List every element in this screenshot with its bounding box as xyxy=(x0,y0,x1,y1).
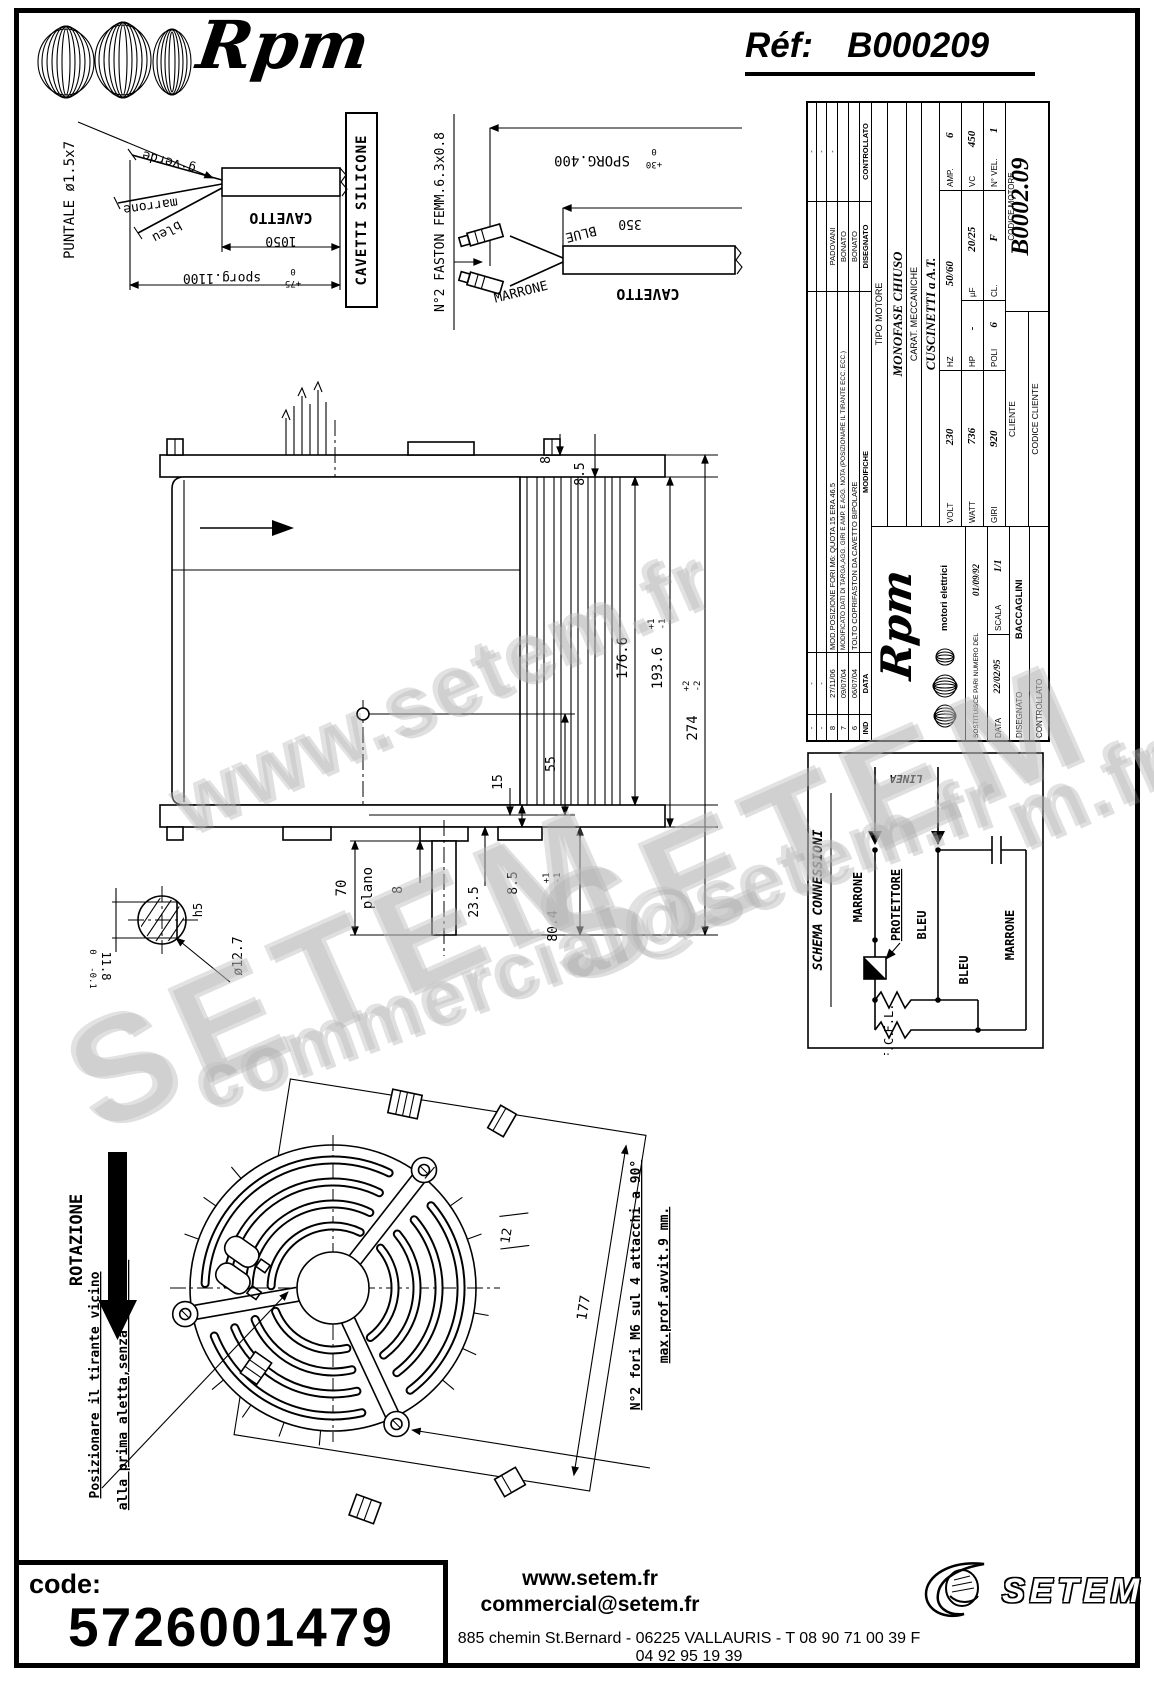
wire-verde-label: g·verde xyxy=(141,147,198,176)
cell-poli: POLI 6 xyxy=(983,300,1006,371)
vel-value: 1 xyxy=(990,102,999,158)
cell-giri: GIRI 920 xyxy=(983,370,1006,527)
cell-amp: AMP. 6 xyxy=(939,101,962,191)
bottom-flange xyxy=(160,805,665,827)
dim-1936: 193.6 xyxy=(650,647,666,689)
blue-label: BLUE xyxy=(564,222,598,244)
dim-8-bot: 8 xyxy=(391,886,406,894)
cl-label: CL. xyxy=(990,285,999,300)
dim-8-top: 8 xyxy=(539,456,554,464)
footer-email: commercial@setem.fr xyxy=(455,1592,725,1618)
volt-label: VOLT xyxy=(946,503,955,526)
ref-value: B000209 xyxy=(847,26,989,66)
shaft-flat-hi: 0 xyxy=(87,949,97,954)
dim-15: 15 xyxy=(491,774,506,790)
cavetti-silicone-label: CAVETTI SILICONE xyxy=(345,112,378,308)
cavetti-silicone-box: CAVETTI SILICONE xyxy=(345,112,378,308)
tb-coils-icon xyxy=(932,639,958,731)
dim-1936-lo: -1 xyxy=(658,619,668,630)
dim-804-lo: -1 xyxy=(553,873,563,884)
cl-value: F xyxy=(990,191,999,285)
cliente-label: CLIENTE xyxy=(1006,312,1017,526)
sostituisce-date: 01/09/92 xyxy=(972,527,981,633)
faston-connector-blue xyxy=(458,224,503,248)
cell-hz: HZ 50/60 xyxy=(939,190,962,371)
linea-label: LINEA xyxy=(889,772,922,785)
footer-address: 885 chemin St.Bernard - 06225 VALLAURIS … xyxy=(448,1630,930,1666)
setem-swoosh-icon xyxy=(920,1558,1000,1630)
scala-value: 1/1 xyxy=(994,527,1003,605)
nota-fori-1: N°2 fori M6 sul 4 attacchi a 90° xyxy=(629,1160,644,1410)
disegnato-value: BACCAGLINI xyxy=(1015,527,1024,692)
dim-70: 70 xyxy=(334,880,350,897)
codice-cliente-label: CODICE CLIENTE xyxy=(1029,312,1040,526)
cell-hp: HP - xyxy=(961,300,984,371)
schema-bleu2: BLEU xyxy=(957,956,971,985)
dim-55: 55 xyxy=(544,756,559,772)
tb-rpm-sub: motori elettrici xyxy=(940,565,949,631)
nota-fori-2: max.prof.avvit.9 mm. xyxy=(657,1207,672,1364)
tb-scala: SCALA 1/1 xyxy=(987,526,1010,635)
tb-data: DATA 22/02/95 xyxy=(987,634,1010,742)
schema-marrone1: MARRONE xyxy=(851,872,865,923)
codice-motore-value: B0002.09 xyxy=(1016,102,1025,311)
uf-label: µF xyxy=(968,288,977,301)
shaft-diameter: ø12.7 xyxy=(231,936,246,975)
schema-fl: F.L. xyxy=(882,1004,896,1033)
dim-177: 177 xyxy=(574,1294,594,1321)
rotazione-label: ROTAZIONE xyxy=(67,1194,87,1286)
giri-value: 920 xyxy=(990,371,999,507)
rpm-brand-text: Rpm xyxy=(193,12,373,78)
cell-cliente: CLIENTE xyxy=(1005,311,1029,527)
terminal-wires xyxy=(282,382,326,455)
data-value: 22/02/95 xyxy=(994,635,1003,718)
dim-85-top: 8.5 xyxy=(573,462,588,485)
volt-value: 230 xyxy=(946,371,955,503)
controllato-label: CONTROLLATO xyxy=(1035,679,1044,741)
vc-label: VC xyxy=(968,176,977,190)
code-box: code: 5726001479 xyxy=(14,1560,448,1668)
motor-side-view: 70 plano 8 8.5 176.6 193.6 +1 -1 274 +2 … xyxy=(50,378,750,1010)
watt-label: WATT xyxy=(968,501,977,526)
schema-fc: F.C. xyxy=(882,1031,896,1055)
hz-label: HZ xyxy=(946,356,955,370)
disegnato-label: DISEGNATO xyxy=(1015,692,1024,741)
schema-title: SCHEMA CONNESSIONI xyxy=(811,829,826,970)
cavetto-right-label: CAVETTO xyxy=(616,285,679,303)
dim-sporg-tol-hi: 0 xyxy=(290,266,295,276)
shaft-section-detail: h5 ø12.7 11.8 0 -0.1 xyxy=(87,871,246,989)
poli-label: POLI xyxy=(990,349,999,370)
cavetto-label: CAVETTO xyxy=(249,209,312,227)
schema-protettore: PROTETTORE xyxy=(889,869,903,941)
cell-codice-motore: CODICE MOTORE B0002.09 xyxy=(1005,101,1050,312)
carat-label: CARAT. MECCANICHE xyxy=(906,101,922,527)
hp-value: - xyxy=(968,301,977,356)
giri-label: GIRI xyxy=(990,507,999,526)
cable-detail-right: N°2 FASTON FEMM.6.3x0.8 SPORG.400 0 +30 … xyxy=(430,100,750,345)
dim-sporg-1100: sporg.1100 xyxy=(183,270,261,285)
rpm-coils-logo-icon xyxy=(28,16,193,104)
hp-label: HP xyxy=(968,356,977,370)
dim-235: 23.5 xyxy=(467,886,482,917)
footer-contact: www.setem.fr commercial@setem.fr xyxy=(455,1566,725,1618)
amp-label: AMP. xyxy=(946,168,955,190)
dim-sporg400-tol-hi: 0 xyxy=(651,146,656,156)
amp-value: 6 xyxy=(946,102,955,168)
vel-label: N° VEL. xyxy=(990,158,999,190)
tb-rpm-brand: Rpm xyxy=(876,567,918,682)
setem-logo-text: SETEM xyxy=(1002,1572,1144,1611)
tb-logo-cell: Rpm motori elettrici xyxy=(871,526,966,742)
ref-block: Réf: B000209 xyxy=(745,26,1035,76)
ref-label: Réf: xyxy=(745,26,813,66)
drawing-sheet: Rpm Réf: B000209 PUNTALE ø1.5x7 g·verde … xyxy=(0,0,1154,1683)
schema-bleu1: BLEU xyxy=(915,911,929,940)
poli-value: 6 xyxy=(990,301,999,349)
top-flange xyxy=(160,455,665,477)
protettore-symbol xyxy=(864,957,886,979)
cooling-fins xyxy=(520,477,620,805)
carat-text: CUSCINETTI a A.T. xyxy=(926,102,935,526)
title-block: - - - - - - 8 27/11/06 MOD.POSIZIONE FOR… xyxy=(806,101,1050,742)
watt-value: 736 xyxy=(968,371,977,501)
tipo-motore-value: MONOFASE CHIUSO xyxy=(887,101,907,527)
dim-12: 12 xyxy=(498,1227,515,1245)
cell-vel: N° VEL. 1 xyxy=(983,101,1006,191)
tb-disegnato: DISEGNATO BACCAGLINI xyxy=(1009,526,1030,742)
uf-value: 20/25 xyxy=(968,191,977,288)
puntale-label: PUNTALE ø1.5x7 xyxy=(62,141,78,259)
footer-site: www.setem.fr xyxy=(455,1566,725,1592)
dim-sporg-400: SPORG.400 xyxy=(554,152,630,168)
wire-bleu-label: bleu xyxy=(149,217,184,245)
faston-label: N°2 FASTON FEMM.6.3x0.8 xyxy=(433,132,448,312)
cell-volt: VOLT 230 xyxy=(939,370,962,527)
plano-label: plano xyxy=(360,867,376,909)
tb-controllato: CONTROLLATO xyxy=(1029,526,1050,742)
shaft-flat-lo: -0.1 xyxy=(87,967,97,989)
dim-1766: 176.6 xyxy=(615,637,631,679)
scala-label: SCALA xyxy=(994,605,1003,634)
dim-274-lo: -2 xyxy=(693,681,703,692)
dim-1936-hi: +1 xyxy=(647,619,657,630)
dim-350: 350 xyxy=(618,216,641,231)
dim-1050: 1050 xyxy=(265,233,296,248)
schema-marrone2: MARRONE xyxy=(1003,910,1017,961)
cell-watt: WATT 736 xyxy=(961,370,984,527)
data-label: DATA xyxy=(994,718,1003,741)
hz-value: 50/60 xyxy=(946,191,955,356)
sostituisce-label: SOSTITUISCE PARI NUMERO DEL xyxy=(972,633,981,741)
nota-posizionare-1: Posizionare il tirante vicino xyxy=(88,1271,103,1498)
schema-connessioni: SCHEMA CONNESSIONI LINEA xyxy=(800,745,1050,1055)
dim-804-hi: +1 xyxy=(542,873,552,884)
shaft-h5: h5 xyxy=(191,903,205,917)
dim-274: 274 xyxy=(685,715,701,740)
tipo-motore-text: MONOFASE CHIUSO xyxy=(893,102,902,526)
dim-804: 80.4 xyxy=(546,910,561,941)
tipo-motore-label: TIPO MOTORE xyxy=(871,101,888,527)
cell-uf: µF 20/25 xyxy=(961,190,984,301)
dim-sporg-tol-lo: +75 xyxy=(285,278,301,288)
cell-codice-cliente: CODICE CLIENTE xyxy=(1028,311,1050,527)
nota-posizionare-2: alla prima aletta,senza toccarla xyxy=(116,1260,131,1511)
motor-body xyxy=(172,477,520,805)
dim-85-bot: 8.5 xyxy=(506,871,521,894)
shaft-flat: 11.8 xyxy=(99,952,113,981)
vc-value: 450 xyxy=(968,102,977,176)
carat-value: CUSCINETTI a A.T. xyxy=(921,101,940,527)
motor-front-view: 177 12 xyxy=(50,1040,750,1570)
tb-sostituisce: SOSTITUISCE PARI NUMERO DEL 01/09/92 xyxy=(965,526,988,742)
cell-cl: CL. F xyxy=(983,190,1006,301)
dim-274-hi: +2 xyxy=(682,681,692,692)
code-value: 5726001479 xyxy=(19,1595,443,1659)
dim-sporg400-tol-lo: +30 xyxy=(646,159,662,169)
cell-vc: VC 450 xyxy=(961,101,984,191)
setem-logo: SETEM xyxy=(920,1558,1142,1630)
